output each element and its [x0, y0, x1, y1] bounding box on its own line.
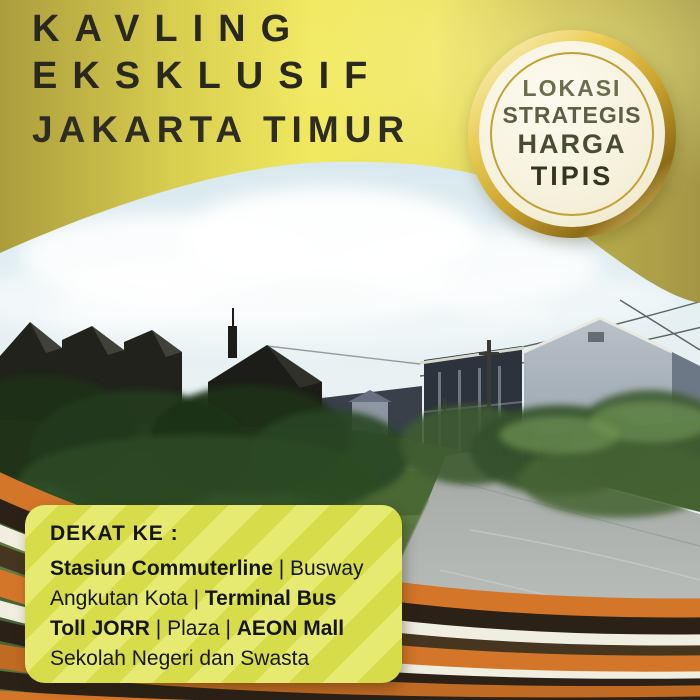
badge-line-3: HARGA — [518, 129, 627, 161]
panel-line-3: Toll JORR | Plaza | AEON Mall — [50, 614, 402, 644]
info-panel: DEKAT KE : Stasiun Commuterline | Busway… — [25, 505, 402, 683]
title-line-2: EKSKLUSIF — [32, 57, 410, 95]
badge-seal: LOKASI STRATEGIS HARGA TIPIS — [468, 30, 676, 238]
badge-line-2: STRATEGIS — [503, 102, 642, 129]
badge-line-4: TIPIS — [531, 161, 614, 193]
title-subtitle: JAKARTA TIMUR — [32, 111, 410, 148]
badge-text: LOKASI STRATEGIS HARGA TIPIS — [468, 30, 676, 238]
real-estate-flyer: KAVLING EKSKLUSIF JAKARTA TIMUR LOKASI S… — [0, 0, 700, 700]
panel-line-1: Stasiun Commuterline | Busway — [50, 554, 402, 584]
panel-line-4: Sekolah Negeri dan Swasta — [50, 644, 402, 674]
panel-line-2: Angkutan Kota | Terminal Bus — [50, 584, 402, 614]
headline: KAVLING EKSKLUSIF JAKARTA TIMUR — [32, 10, 410, 148]
badge-line-1: LOKASI — [523, 75, 622, 102]
panel-heading: DEKAT KE : — [50, 522, 402, 546]
title-line-1: KAVLING — [32, 10, 410, 48]
